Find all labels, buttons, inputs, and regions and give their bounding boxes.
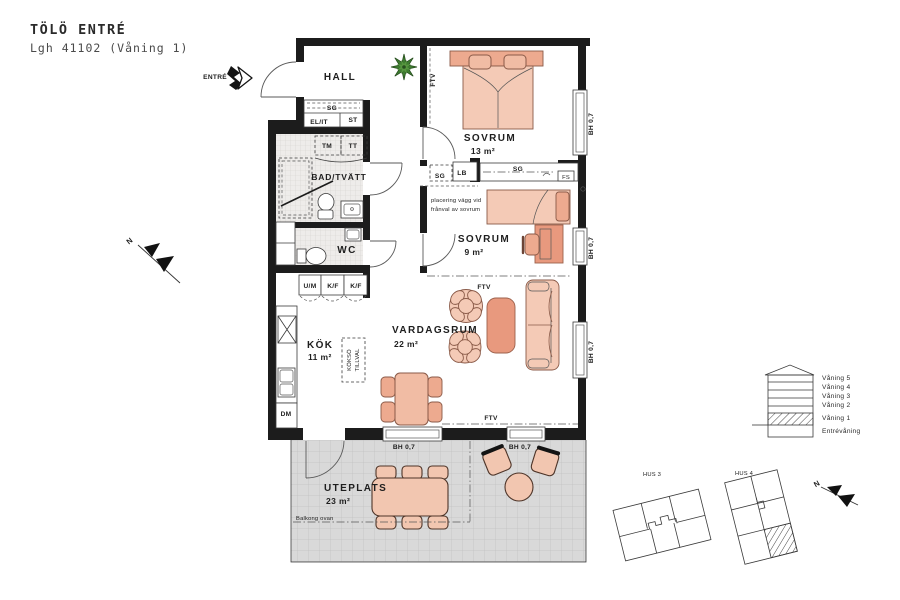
patio-chair bbox=[428, 516, 448, 529]
fixture-label-fs: FS bbox=[562, 175, 570, 181]
bathroom-door-swing bbox=[370, 163, 402, 195]
fixture-label-kf: K/F bbox=[327, 283, 339, 290]
floor-label-1: Våning 1 bbox=[822, 414, 850, 422]
room-label-bad: BAD/TVÄTT bbox=[311, 172, 366, 182]
room-label-sovrum13: SOVRUM bbox=[464, 133, 516, 144]
fixture-label-sg: SG bbox=[435, 173, 445, 180]
room-label-vardagsrum: VARDAGSRUM bbox=[392, 325, 478, 336]
dining-chair bbox=[381, 402, 395, 422]
pillow bbox=[504, 55, 526, 69]
window-height-label: BH 0,7 bbox=[588, 341, 595, 363]
north-label: N bbox=[812, 479, 821, 490]
entrance-label: ENTRÉ bbox=[203, 72, 227, 81]
wc-door-swing bbox=[370, 241, 396, 267]
room-label-kok: KÖK bbox=[307, 338, 333, 351]
fixture-label-tt: TT bbox=[349, 143, 358, 150]
room-area-uteplats: 23 m² bbox=[326, 496, 350, 506]
annotation-placering-2: frånval av sovrum bbox=[431, 206, 480, 213]
bedroom9-door-swing bbox=[423, 234, 455, 266]
ftv-label: FTV bbox=[430, 73, 437, 87]
ftv-label: FTV bbox=[484, 415, 498, 422]
cabinet bbox=[276, 222, 295, 265]
floor-label-2: Våning 2 bbox=[822, 401, 850, 409]
room-label-hall: HALL bbox=[324, 72, 356, 83]
patio-chair bbox=[376, 516, 396, 529]
dining-chair bbox=[381, 377, 395, 397]
room-label-uteplats: UTEPLATS bbox=[324, 483, 387, 494]
hus3-outline bbox=[613, 489, 711, 561]
kitchen-counter bbox=[276, 306, 297, 403]
fixture-label-elit: EL/IT bbox=[310, 119, 328, 126]
floor-label-4: Våning 4 bbox=[822, 383, 850, 391]
bedroom13-door-swing bbox=[423, 127, 455, 159]
armchair bbox=[448, 288, 484, 324]
dining-chair bbox=[428, 402, 442, 422]
pillow bbox=[469, 55, 491, 69]
fixture-label-tm: TM bbox=[322, 143, 332, 150]
fixture-label-dm: DM bbox=[281, 411, 292, 418]
desk-chair bbox=[525, 234, 539, 255]
window bbox=[573, 90, 587, 155]
bedroom9-furniture bbox=[487, 190, 570, 263]
hus4-label: HUS 4 bbox=[735, 471, 754, 477]
patio-chair bbox=[428, 466, 448, 479]
room-label-sovrum9: SOVRUM bbox=[458, 234, 510, 245]
toilet-tank bbox=[297, 249, 306, 263]
patio-chair bbox=[402, 516, 422, 529]
entrance-door-swing bbox=[261, 62, 296, 97]
window-height-label: BH 0,7 bbox=[509, 444, 531, 451]
north-compass bbox=[138, 243, 180, 283]
window-height-label: BH 0,7 bbox=[393, 444, 415, 451]
kitchen-island-optional bbox=[342, 338, 365, 382]
room-area-sovrum9: 9 m² bbox=[464, 247, 483, 257]
bed-headboard bbox=[450, 51, 543, 66]
kitchen-island-label-2: TILLVAL bbox=[355, 348, 361, 372]
floor-label-3: Våning 3 bbox=[822, 392, 850, 400]
pillow bbox=[556, 192, 569, 221]
toilet bbox=[306, 248, 326, 265]
fixture-label-lb: LB bbox=[457, 170, 466, 177]
floor-label-5: Våning 5 bbox=[822, 374, 850, 382]
site-north-compass bbox=[821, 485, 858, 507]
fixture-label-kf: K/F bbox=[350, 283, 362, 290]
floor-plan-canvas: ENTRÉ HALL SG EL/IT ST TM TT BAD/TVÄTT W… bbox=[0, 0, 900, 600]
window bbox=[383, 427, 442, 441]
dining-chair bbox=[428, 377, 442, 397]
current-floor-hatch bbox=[768, 413, 813, 425]
hus4-outline bbox=[725, 470, 798, 565]
window bbox=[573, 228, 587, 265]
fixture-label-sg: SG bbox=[327, 105, 337, 112]
dining-table bbox=[395, 373, 428, 425]
hus3-label: HUS 3 bbox=[643, 472, 661, 478]
annotation-balkong: Balkong ovan bbox=[296, 516, 334, 522]
livingroom-furniture bbox=[381, 280, 559, 425]
floor-label-entre: Entrévåning bbox=[822, 427, 861, 435]
room-area-kok: 11 m² bbox=[308, 352, 332, 362]
floorplan-page: TÖLÖ ENTRÉ Lgh 41102 (Våning 1) bbox=[0, 0, 900, 600]
ftv-label: FTV bbox=[477, 284, 491, 291]
fixture-label-um: U/M bbox=[304, 283, 317, 290]
annotation-placering-1: placering vägg vid bbox=[431, 198, 481, 204]
room-area-vardagsrum: 22 m² bbox=[394, 339, 418, 349]
north-label: N bbox=[125, 236, 135, 246]
patio-round-table bbox=[505, 473, 533, 501]
sofa bbox=[526, 280, 559, 370]
patio-chair bbox=[376, 466, 396, 479]
patio-chair bbox=[402, 466, 422, 479]
bedroom13-furniture bbox=[430, 48, 543, 129]
fixture-label-sg: SG bbox=[513, 166, 523, 173]
window-height-label: BH 0,7 bbox=[588, 113, 595, 135]
window-height-label: BH 0,7 bbox=[588, 237, 595, 259]
room-area-sovrum13: 13 m² bbox=[471, 146, 495, 156]
fixture-label-st: ST bbox=[348, 117, 357, 124]
room-label-wc: WC bbox=[337, 245, 356, 256]
window bbox=[507, 427, 545, 441]
window bbox=[573, 322, 587, 378]
apartment-location-hatch bbox=[764, 523, 797, 558]
kitchen-island-label-1: KÖKSÖ bbox=[346, 349, 353, 371]
entrance-arrow-icon bbox=[227, 66, 252, 90]
building-elevation bbox=[752, 365, 814, 437]
coffee-table bbox=[487, 298, 515, 353]
toilet bbox=[318, 194, 334, 211]
plant-icon bbox=[391, 54, 417, 80]
